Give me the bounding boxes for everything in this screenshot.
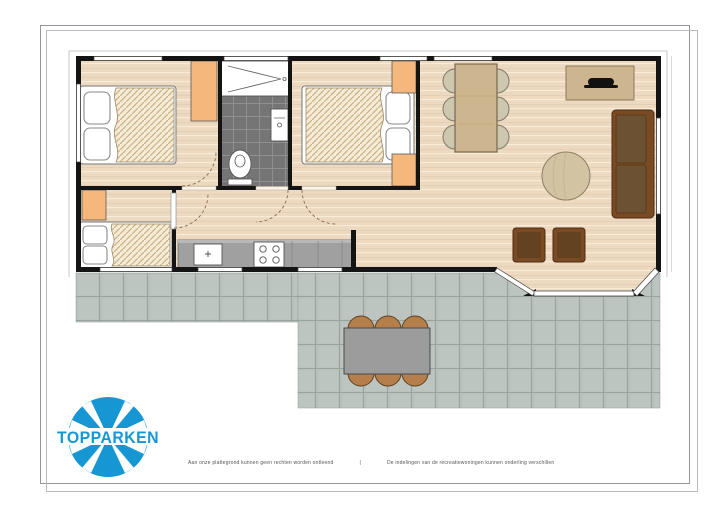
pillow xyxy=(83,226,107,244)
wall-hall-top-4 xyxy=(336,186,420,190)
terrace-strip xyxy=(76,273,298,322)
wardrobe-icon xyxy=(392,154,416,186)
window-icon xyxy=(380,57,427,61)
kitchen xyxy=(178,240,352,268)
wall-exterior-top xyxy=(76,56,661,61)
wall-hall-top-2 xyxy=(216,186,256,190)
toilet-cistern xyxy=(228,179,252,185)
bathroom xyxy=(221,61,290,188)
wall-bathroom-right xyxy=(288,61,292,190)
armchair-seat xyxy=(517,232,541,258)
disclaimer-left: Aan onze plattegrond kunnen geen rechten… xyxy=(188,460,333,466)
page: TOPPARKEN Aan onze plattegrond kunnen ge… xyxy=(0,0,713,519)
topparken-logo: TOPPARKEN xyxy=(57,397,159,477)
sofa-cushion xyxy=(616,165,646,213)
disclaimer-separator: | xyxy=(359,460,361,466)
tv-stand xyxy=(584,85,618,88)
footer-disclaimer: Aan onze plattegrond kunnen geen rechten… xyxy=(188,460,554,466)
bay-window-front-icon xyxy=(534,291,634,296)
pillow xyxy=(84,128,110,160)
window-icon xyxy=(298,268,342,272)
door-opening xyxy=(182,187,216,191)
wall-kitchen-stub xyxy=(351,230,356,272)
bed-duvet xyxy=(114,88,174,162)
logo-wordmark: TOPPARKEN xyxy=(57,428,159,447)
sofa xyxy=(612,110,654,218)
window-icon xyxy=(94,57,162,61)
sideboard xyxy=(566,66,634,100)
wardrobe-icon xyxy=(82,190,106,220)
hob-icon xyxy=(254,242,284,267)
window-icon xyxy=(224,57,288,61)
window-icon xyxy=(198,268,242,272)
pillow xyxy=(386,92,410,124)
wall-hall-top-3 xyxy=(288,186,302,190)
outdoor-table-icon xyxy=(344,328,430,374)
toilet-icon xyxy=(229,150,251,178)
dining-set xyxy=(443,64,509,152)
wall-bedroom3-right-b xyxy=(172,228,176,272)
washbasin-icon xyxy=(271,109,288,141)
door-opening xyxy=(302,187,336,191)
pillow xyxy=(83,246,107,264)
disclaimer-right: De indelingen van de recreatiewoningen k… xyxy=(387,460,554,466)
armchair-seat xyxy=(557,232,581,258)
floor-plan: TOPPARKEN xyxy=(0,0,713,519)
bed-duvet xyxy=(111,224,170,266)
wardrobe-icon xyxy=(191,61,217,121)
window-icon xyxy=(657,118,661,214)
shower-drain-icon xyxy=(283,77,286,80)
wall-hall-top-1 xyxy=(76,186,182,190)
wall-bedroom2-right xyxy=(416,61,420,190)
tv-icon xyxy=(588,78,614,86)
outdoor-dining-set xyxy=(344,316,430,386)
round-rug-icon xyxy=(542,152,590,200)
wall-bathroom-left xyxy=(218,61,222,190)
window-icon xyxy=(434,57,492,61)
sofa-cushion xyxy=(616,115,646,163)
wardrobe-icon xyxy=(392,61,416,93)
bed-duvet xyxy=(306,88,383,162)
pillow xyxy=(84,92,110,124)
dining-table-icon xyxy=(455,64,497,152)
door-leaf xyxy=(171,193,176,229)
window-icon xyxy=(100,268,172,272)
window-icon xyxy=(77,84,81,162)
door-opening xyxy=(256,187,288,191)
